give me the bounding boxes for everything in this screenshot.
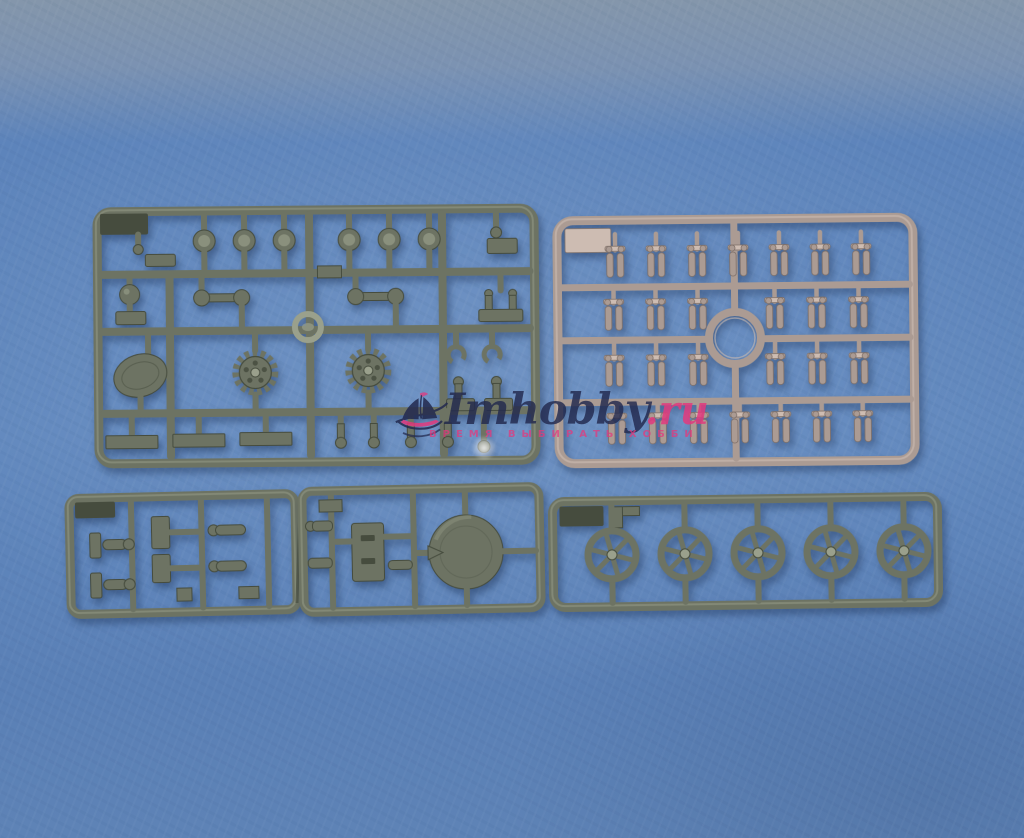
cluster-row-1 (605, 232, 871, 278)
molding-tab (559, 506, 603, 527)
small-part-cluster (810, 232, 830, 275)
dome-part (273, 214, 296, 273)
sprue-olive-small-left-section (68, 492, 298, 615)
sprue-olive-details (96, 207, 536, 464)
road-wheel (879, 500, 928, 599)
small-part-cluster (646, 234, 666, 277)
small-part-cluster (687, 233, 707, 276)
molding-tab (100, 213, 148, 234)
photo-of-model-kit-sprues: Imhobby.ru ВРЕМЯ ВЫБИРАТЬ ХОББИ (0, 0, 1024, 838)
small-part-cluster (765, 341, 785, 384)
small-part-cluster (648, 401, 668, 444)
dome-part (193, 215, 216, 274)
dome-parts-row (193, 213, 441, 274)
sprue-tan-small-parts (556, 216, 916, 464)
small-part-cluster (688, 342, 708, 385)
dome-part (418, 213, 441, 272)
capped-pins (335, 411, 453, 449)
molding-tab (75, 502, 115, 519)
flat-plate (240, 432, 292, 445)
small-part-cluster (853, 399, 873, 442)
small-part-cluster (604, 343, 624, 386)
road-wheel (733, 503, 782, 602)
sprue-olive-wheels (551, 495, 939, 608)
molding-tab (565, 228, 611, 252)
center-ring-part (709, 312, 762, 365)
drive-sprocket (349, 351, 387, 389)
dome-part (233, 215, 256, 274)
tow-hook (445, 344, 467, 366)
small-part-cluster (603, 287, 623, 330)
small-part-cluster (769, 232, 789, 275)
road-wheel (660, 504, 709, 603)
drive-sprocket (236, 353, 274, 391)
slotted-panel (351, 523, 384, 582)
dome-part (378, 213, 401, 272)
small-part-cluster (771, 399, 791, 442)
sprue-scene (0, 0, 1024, 838)
small-part-cluster (807, 341, 827, 384)
small-part-cluster (849, 341, 869, 384)
small-part-cluster (645, 287, 665, 330)
sprue-olive-small-right-section (301, 485, 542, 612)
small-part-cluster (607, 401, 627, 444)
tow-hook (481, 344, 503, 366)
small-part-cluster (646, 343, 666, 386)
flat-plate (173, 434, 225, 447)
small-part-cluster (806, 285, 826, 328)
road-wheel (806, 501, 855, 600)
flat-plate (106, 435, 158, 448)
small-part-cluster (848, 285, 868, 328)
small-part-cluster (687, 286, 707, 329)
cluster-row-4 (607, 399, 873, 445)
small-part-cluster (764, 285, 784, 328)
small-part-cluster (851, 232, 871, 275)
small-part-cluster (689, 400, 709, 443)
dome-part (338, 214, 361, 273)
small-part-cluster (812, 399, 832, 442)
